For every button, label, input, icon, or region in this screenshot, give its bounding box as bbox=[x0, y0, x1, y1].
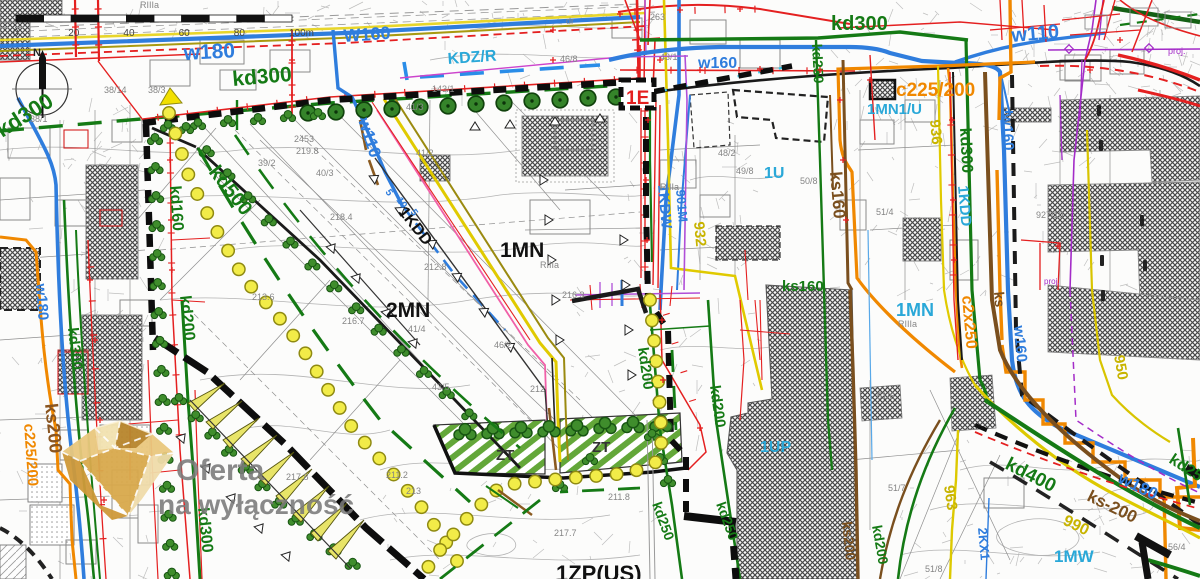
svg-text:w180: w180 bbox=[182, 39, 236, 65]
svg-text:w110: w110 bbox=[1010, 21, 1061, 47]
svg-text:1E: 1E bbox=[626, 88, 649, 109]
svg-text:40/3: 40/3 bbox=[316, 168, 334, 178]
svg-text:RIIIa: RIIIa bbox=[898, 319, 917, 329]
svg-text:ZT: ZT bbox=[496, 447, 514, 464]
svg-text:1KDD: 1KDD bbox=[954, 185, 975, 227]
svg-text:w180: w180 bbox=[32, 282, 52, 321]
svg-text:kd160: kd160 bbox=[166, 185, 186, 232]
svg-text:100m: 100m bbox=[289, 28, 314, 39]
svg-text:proj.: proj. bbox=[1044, 277, 1060, 286]
svg-text:213.6: 213.6 bbox=[252, 292, 275, 302]
svg-text:1MN: 1MN bbox=[500, 239, 544, 262]
svg-text:2453: 2453 bbox=[294, 134, 314, 144]
svg-text:263: 263 bbox=[650, 12, 665, 22]
svg-text:51/4: 51/4 bbox=[876, 207, 894, 217]
svg-text:56/4: 56/4 bbox=[1168, 542, 1186, 552]
svg-text:43/5: 43/5 bbox=[432, 382, 450, 392]
svg-text:RIIIa: RIIIa bbox=[140, 0, 159, 10]
svg-text:dr: dr bbox=[566, 16, 574, 26]
svg-text:1UP: 1UP bbox=[760, 439, 791, 456]
svg-text:38/3: 38/3 bbox=[148, 85, 166, 95]
svg-text:218.4: 218.4 bbox=[330, 212, 353, 222]
svg-text:41/3: 41/3 bbox=[406, 102, 424, 112]
svg-text:41/4: 41/4 bbox=[408, 324, 426, 334]
svg-text:212: 212 bbox=[530, 384, 545, 394]
svg-text:KDZ/R: KDZ/R bbox=[447, 48, 497, 68]
svg-text:kd250: kd250 bbox=[809, 43, 827, 84]
svg-text:1U: 1U bbox=[764, 165, 784, 182]
svg-text:W160: W160 bbox=[343, 23, 391, 46]
svg-text:Oferta: Oferta bbox=[176, 454, 265, 487]
svg-text:936: 936 bbox=[926, 119, 945, 145]
svg-text:38/1: 38/1 bbox=[30, 114, 48, 124]
svg-text:ks160: ks160 bbox=[782, 278, 824, 295]
svg-text:216.3: 216.3 bbox=[562, 290, 585, 300]
svg-text:kd300: kd300 bbox=[956, 127, 975, 173]
svg-text:51/7: 51/7 bbox=[888, 483, 906, 493]
svg-text:211.2: 211.2 bbox=[386, 470, 408, 480]
svg-text:20: 20 bbox=[68, 28, 80, 39]
svg-text:60: 60 bbox=[179, 28, 191, 39]
svg-text:927/10: 927/10 bbox=[1036, 210, 1064, 220]
svg-text:932: 932 bbox=[690, 221, 709, 247]
svg-text:w160: w160 bbox=[697, 55, 737, 72]
svg-text:80: 80 bbox=[234, 28, 246, 39]
svg-text:41/2: 41/2 bbox=[416, 148, 434, 158]
svg-text:2MN: 2MN bbox=[386, 299, 430, 322]
svg-text:51/8: 51/8 bbox=[925, 564, 943, 574]
svg-text:46/2: 46/2 bbox=[494, 340, 512, 350]
svg-text:1ZP(US): 1ZP(US) bbox=[556, 561, 642, 579]
svg-text:1MN: 1MN bbox=[896, 300, 934, 320]
svg-text:212.8: 212.8 bbox=[424, 262, 447, 272]
svg-text:na wyłączność: na wyłączność bbox=[158, 489, 354, 520]
svg-text:48/2: 48/2 bbox=[718, 148, 736, 158]
svg-text:1MN1/U: 1MN1/U bbox=[867, 101, 922, 118]
svg-text:proj.: proj. bbox=[1168, 46, 1186, 56]
svg-text:w160: w160 bbox=[1010, 324, 1030, 363]
svg-text:217.8: 217.8 bbox=[286, 472, 309, 482]
svg-text:39/2: 39/2 bbox=[258, 158, 276, 168]
svg-text:RIIIa: RIIIa bbox=[660, 182, 679, 192]
svg-text:38/14: 38/14 bbox=[104, 85, 127, 95]
svg-text:901M: 901M bbox=[673, 189, 691, 223]
svg-text:ks: ks bbox=[991, 291, 1008, 308]
svg-text:ZT: ZT bbox=[592, 439, 610, 456]
svg-text:46/8: 46/8 bbox=[560, 54, 578, 64]
svg-text:50/8: 50/8 bbox=[800, 176, 818, 186]
svg-text:213: 213 bbox=[406, 486, 421, 496]
svg-text:217.7: 217.7 bbox=[554, 528, 577, 538]
svg-text:51/6: 51/6 bbox=[877, 391, 895, 401]
svg-text:216.7: 216.7 bbox=[342, 316, 365, 326]
svg-text:963: 963 bbox=[940, 484, 960, 511]
svg-text:w160: w160 bbox=[998, 112, 1017, 151]
svg-text:c225/200: c225/200 bbox=[896, 80, 975, 101]
svg-text:49/8: 49/8 bbox=[736, 166, 754, 176]
svg-text:RIIIa: RIIIa bbox=[540, 260, 559, 270]
svg-text:N: N bbox=[33, 47, 41, 59]
svg-text:219.8: 219.8 bbox=[296, 146, 319, 156]
svg-text:211.8: 211.8 bbox=[608, 492, 630, 502]
svg-text:2KX1: 2KX1 bbox=[975, 527, 993, 561]
svg-text:1MW: 1MW bbox=[1054, 547, 1095, 566]
svg-text:40: 40 bbox=[123, 28, 135, 39]
svg-text:143/1: 143/1 bbox=[432, 84, 455, 94]
svg-text:kd300: kd300 bbox=[831, 13, 888, 35]
svg-text:0: 0 bbox=[13, 28, 19, 39]
